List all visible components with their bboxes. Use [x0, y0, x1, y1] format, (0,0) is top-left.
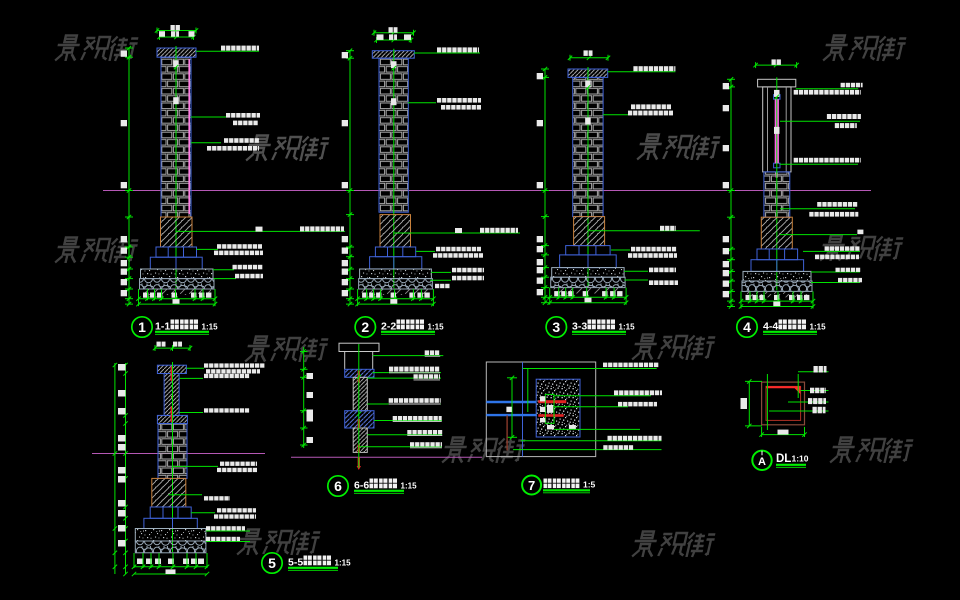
svg-text:3: 3 [552, 319, 560, 335]
svg-text:1:15: 1:15 [335, 559, 352, 568]
svg-text:1:15: 1:15 [428, 323, 445, 332]
svg-text:1:15: 1:15 [619, 323, 636, 332]
svg-text:1:15: 1:15 [810, 323, 827, 332]
svg-text:DL: DL [776, 453, 791, 465]
svg-text:A: A [758, 456, 766, 468]
svg-text:6: 6 [334, 478, 342, 494]
svg-text:1: 1 [138, 319, 146, 335]
svg-text:1:15: 1:15 [202, 323, 219, 332]
svg-text:1:5: 1:5 [583, 480, 596, 490]
svg-text:7: 7 [528, 478, 535, 493]
svg-text:2: 2 [361, 319, 369, 335]
svg-text:1:10: 1:10 [792, 454, 809, 464]
svg-text:1:15: 1:15 [401, 482, 418, 491]
svg-text:4: 4 [743, 319, 751, 335]
svg-text:5: 5 [268, 555, 276, 571]
